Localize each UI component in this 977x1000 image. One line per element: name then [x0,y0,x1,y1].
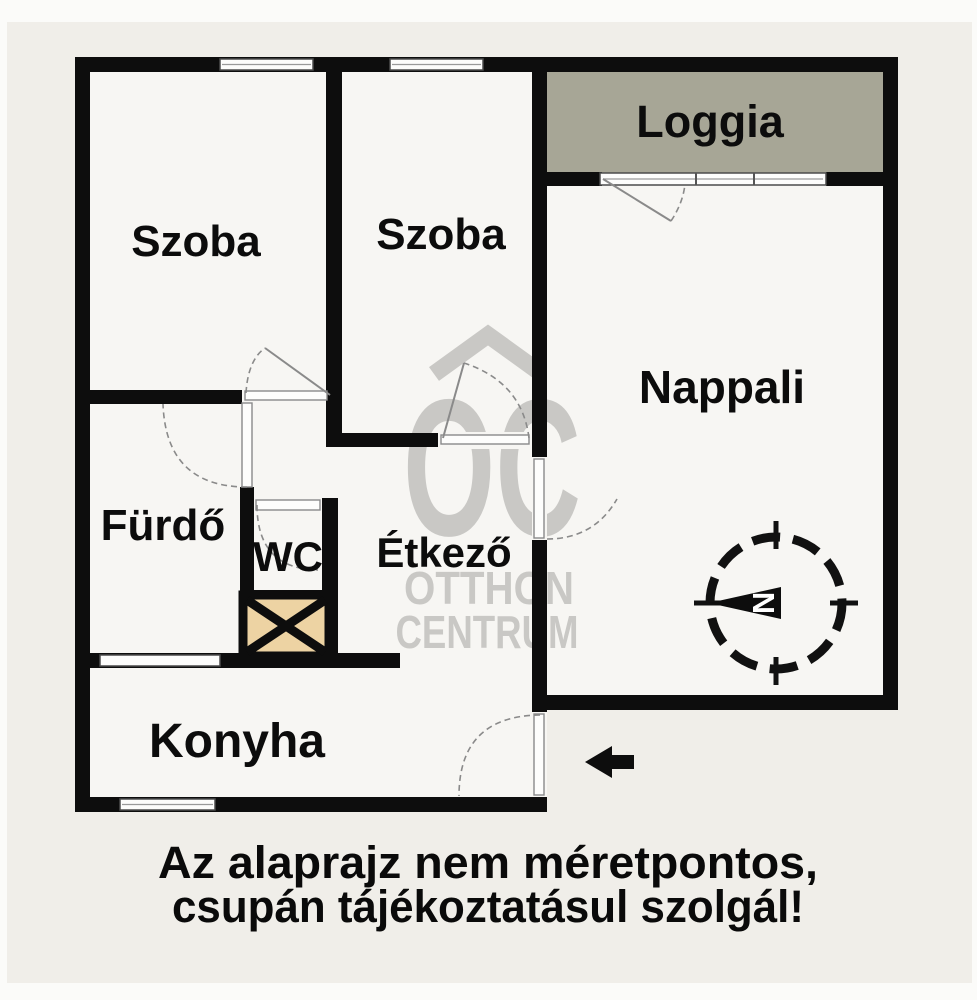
wall-wc-west [240,487,254,607]
door-threshold [245,391,327,400]
wall-outer-left [75,57,90,812]
wall-loggia-sill-left [532,172,602,186]
door-leaf [534,714,544,795]
margin-right [972,0,977,1000]
door-leaf [256,500,320,510]
window-loggia-glazing [600,173,826,185]
label-konyha: Konyha [149,715,325,768]
wall-loggia-sill-right [826,172,898,186]
window-szoba1-north [220,59,313,70]
window-konyha-south [120,799,215,810]
door-leaf [534,459,544,538]
floorplan-svg: OC OTTHON CENTRUM [0,0,977,1000]
window-furdo-internal [100,655,220,666]
wall-nappali-west-upper [532,57,547,457]
window-frame [100,655,220,666]
label-szoba2: Szoba [376,210,506,259]
wall-szoba2-south [326,433,438,447]
door-threshold [441,435,529,444]
wall-nappali-south [532,695,898,710]
label-szoba1: Szoba [131,217,261,266]
wall-szoba-divider [326,57,342,447]
wall-outer-right [883,57,898,710]
wall-outer-top [75,57,898,72]
margin-left [0,0,7,1000]
door-leaf [242,403,252,487]
margin-bottom [0,983,977,1000]
floorplan-page: OC OTTHON CENTRUM [0,0,977,1000]
watermark-name-line2: CENTRUM [396,606,579,658]
wall-nappali-west-lower [532,540,547,712]
compass-north-letter: N [746,592,781,614]
watermark: OC OTTHON CENTRUM [396,335,582,658]
window-szoba2-north [390,59,483,70]
label-etkezo: Étkező [376,529,511,576]
label-nappali: Nappali [639,361,805,413]
disclaimer-line2: csupán tájékoztatásul szolgál! [172,881,804,932]
label-loggia: Loggia [636,96,784,147]
wall-szoba1-south [75,390,242,404]
label-furdo: Fürdő [101,501,226,550]
disclaimer: Az alaprajz nem méretpontos, csupán tájé… [158,837,818,932]
margin-top [0,0,977,22]
ventilation-shaft [243,595,329,656]
label-wc: WC [253,533,323,580]
